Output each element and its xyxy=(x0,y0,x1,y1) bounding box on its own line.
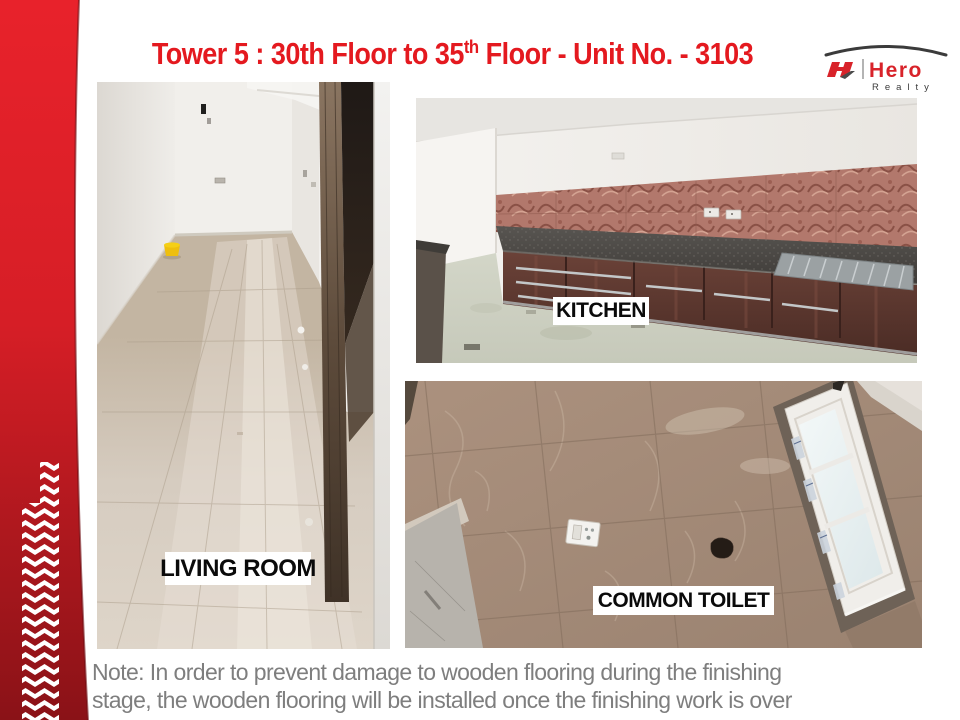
title-part1: Tower 5 : 30th Floor to 35 xyxy=(152,37,464,71)
living-room-label: LIVING ROOM xyxy=(165,552,311,585)
kitchen-photo: KITCHEN xyxy=(416,98,917,363)
common-toilet-photo: COMMON TOILET xyxy=(405,381,922,648)
living-room-photo: LIVING ROOM xyxy=(97,82,390,649)
logo-sub-text: Realty xyxy=(872,82,935,93)
logo-arc-icon xyxy=(826,47,946,56)
title-superscript: th xyxy=(464,36,479,57)
logo-brand-text: Hero xyxy=(869,59,923,82)
kitchen-photo-graphic xyxy=(416,98,917,363)
note-line-2: stage, the wooden flooring will be insta… xyxy=(92,686,954,714)
bucket-shape xyxy=(163,242,181,259)
note-line-1: Note: In order to prevent damage to wood… xyxy=(92,658,954,686)
slide-root: Tower 5 : 30th Floor to 35th Floor - Uni… xyxy=(0,0,960,720)
hero-realty-logo: Hero Realty xyxy=(820,34,952,94)
hero-emblem-icon xyxy=(827,62,855,79)
switch-plate-shape xyxy=(566,519,601,547)
wheat-pattern-icon xyxy=(16,460,64,720)
page-title: Tower 5 : 30th Floor to 35th Floor - Uni… xyxy=(95,36,810,72)
title-part2: Floor - Unit No. - 3103 xyxy=(479,37,754,71)
common-toilet-label: COMMON TOILET xyxy=(593,586,774,615)
note-text: Note: In order to prevent damage to wood… xyxy=(92,658,954,714)
kitchen-label: KITCHEN xyxy=(553,297,649,325)
